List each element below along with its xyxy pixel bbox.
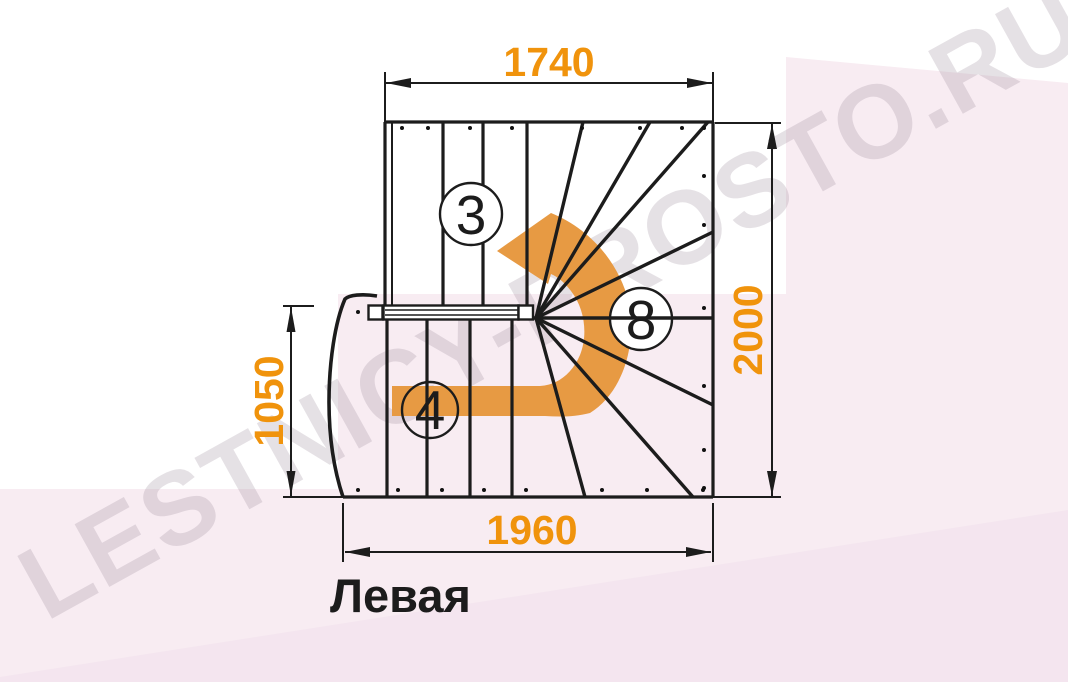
stair-plan-diagram: LESTNICY-PROSTO.RU <box>0 0 1068 682</box>
handrail-post-left <box>369 306 383 320</box>
dimension-top-label: 1740 <box>503 39 594 85</box>
handrail-post-right <box>519 306 534 320</box>
page-title: Левая <box>330 569 471 622</box>
winder-count-label: 8 <box>626 289 657 351</box>
dimension-bottom-label: 1960 <box>486 507 577 553</box>
dimension-left-label: 1050 <box>246 355 292 446</box>
dimension-right-label: 2000 <box>725 284 771 375</box>
step-count-upper: 3 <box>440 183 502 246</box>
lower-count-label: 4 <box>415 379 446 441</box>
upper-count-label: 3 <box>456 184 487 246</box>
diagram-canvas: LESTNICY-PROSTO.RU <box>0 0 1068 682</box>
handrail <box>369 306 534 320</box>
handrail-bar <box>384 306 519 320</box>
